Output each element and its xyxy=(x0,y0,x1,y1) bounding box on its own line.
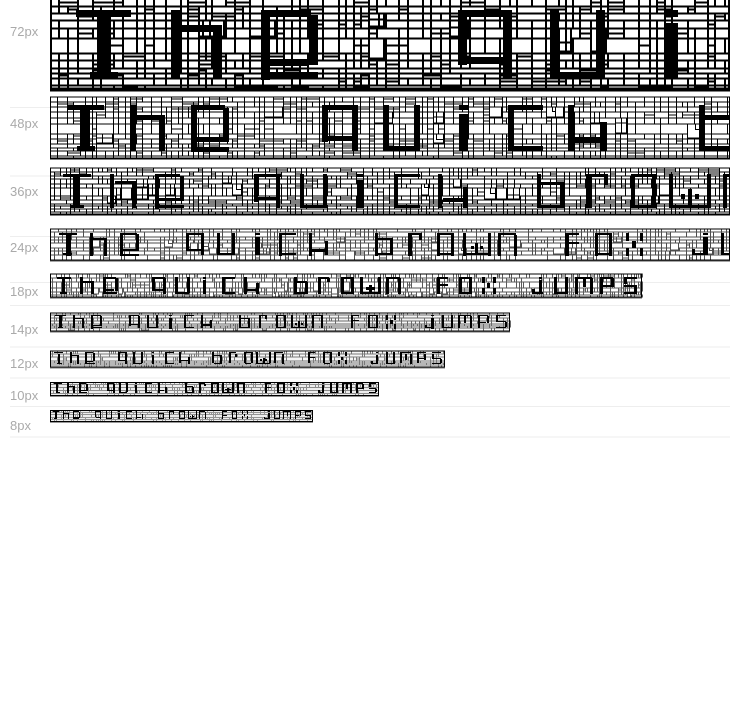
svg-text:14px: 14px xyxy=(10,322,39,337)
svg-text:48px: 48px xyxy=(10,116,39,131)
svg-text:18px: 18px xyxy=(10,284,39,299)
svg-text:72px: 72px xyxy=(10,24,39,39)
svg-text:12px: 12px xyxy=(10,356,39,371)
svg-text:36px: 36px xyxy=(10,184,39,199)
svg-text:10px: 10px xyxy=(10,388,39,403)
svg-text:8px: 8px xyxy=(10,418,31,433)
svg-text:24px: 24px xyxy=(10,240,39,255)
